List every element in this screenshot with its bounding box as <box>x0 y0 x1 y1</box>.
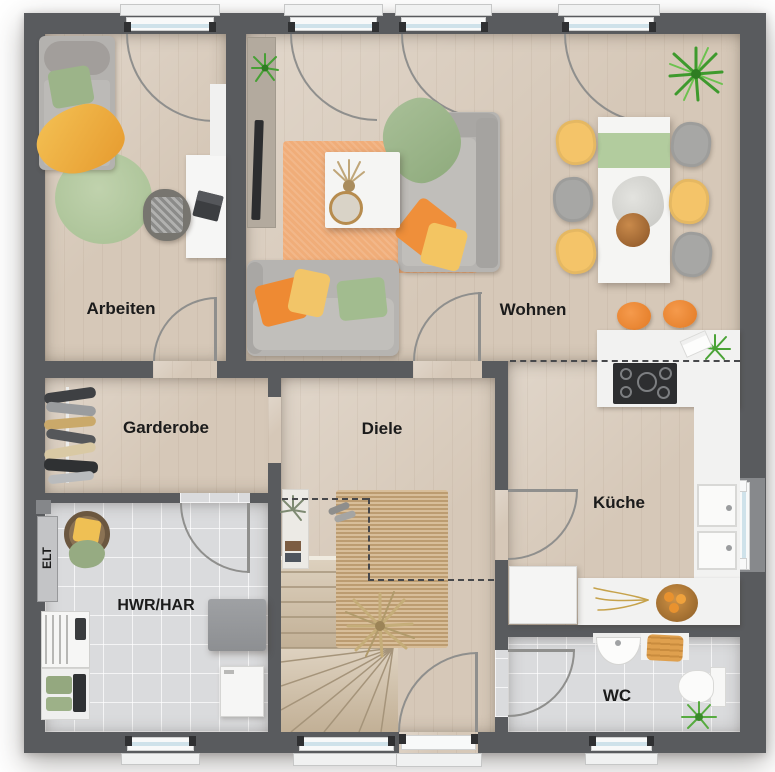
front-door-latch <box>399 734 406 744</box>
wall-diele-kueche-upper <box>495 378 508 490</box>
arbeiten-door-leaf <box>214 297 217 361</box>
front-door-sill <box>396 753 482 767</box>
kitchen-sink-2 <box>697 531 737 570</box>
wall-hwr-top-left <box>45 493 180 503</box>
arbeiten-door-opening <box>153 361 217 378</box>
cooktop-burner-4 <box>659 367 672 380</box>
wall-wc-left-upper <box>495 637 508 650</box>
hall-console-plant <box>277 492 309 524</box>
floorplan-canvas: Arbeiten Wohnen Garderobe Diele Küche HW… <box>0 0 775 772</box>
window-diele-glass <box>301 742 392 746</box>
folded-towels-green-2 <box>46 697 72 711</box>
wc-basin-faucet <box>615 640 621 646</box>
window-wohnen-3-cap-right <box>649 22 656 32</box>
cooktop-burner-3 <box>637 372 657 392</box>
dashed-line-stair-right <box>368 498 370 579</box>
hwr-door-opening <box>180 493 250 503</box>
room-label-garderobe: Garderobe <box>123 418 209 438</box>
window-hwr-glass <box>129 742 192 746</box>
coffee-table-tray <box>329 191 363 225</box>
fruit-orange-2 <box>676 594 686 604</box>
room-label-wohnen: Wohnen <box>500 300 567 320</box>
pampas-plant <box>342 586 418 662</box>
window-arbeiten-glass <box>128 24 212 28</box>
window-sill-diele <box>293 753 400 766</box>
room-label-arbeiten: Arbeiten <box>87 299 156 319</box>
window-sill-hwr <box>121 753 200 765</box>
window-sill-wc <box>585 753 658 765</box>
window-arbeiten-cap-left <box>124 22 131 32</box>
room-label-wc: WC <box>603 686 631 706</box>
wc-plant <box>676 697 722 733</box>
window-wc-glass <box>593 742 650 746</box>
laundry-dark-item <box>73 674 86 712</box>
window-wc-cap-left <box>589 736 596 746</box>
front-door-leaf-line <box>475 652 478 732</box>
hall-console-book-2 <box>285 553 301 562</box>
window-sill-wohnen-2 <box>395 4 492 16</box>
room-label-elt: ELT <box>40 547 54 569</box>
window-wohnen-2-cap-right <box>481 22 488 32</box>
window-sill-arbeiten <box>120 4 220 16</box>
bar-stool-2 <box>663 300 697 328</box>
wall-arbeiten-wohnen <box>226 34 246 361</box>
bar-stool-1 <box>617 302 651 330</box>
window-wohnen-3-cap-left <box>562 22 569 32</box>
desk-chair-cushion <box>151 197 183 233</box>
fruit-orange-3 <box>669 603 679 613</box>
room-label-kueche: Küche <box>593 493 645 513</box>
cooktop-burner-2 <box>620 386 632 398</box>
wall-diele-kueche-lower <box>495 560 508 625</box>
wall-wohnen-kueche-corner <box>482 361 508 378</box>
kueche-door-leaf <box>508 489 578 492</box>
kueche-door-opening <box>495 490 508 560</box>
wall-arbeiten-bottom-right <box>217 361 246 378</box>
window-wc-cap-right <box>647 736 654 746</box>
kitchen-faucet-2 <box>726 545 732 551</box>
hall-console-book-1 <box>285 541 301 551</box>
drying-rack-bars <box>45 615 73 664</box>
window-wohnen-2-cap-left <box>399 22 406 32</box>
heat-pump-unit <box>208 599 266 651</box>
palm-plant <box>664 42 728 106</box>
fridge <box>509 566 577 624</box>
cooktop-burner-1 <box>620 368 632 380</box>
wc-door-opening <box>495 650 508 717</box>
window-wohnen-3-glass <box>566 24 652 28</box>
wall-arbeiten-bottom-left <box>45 361 153 378</box>
window-sill-wohnen-1 <box>284 4 383 16</box>
dashed-line-stair-top <box>282 498 368 500</box>
wc-towel <box>646 634 683 662</box>
wohnen-door-opening <box>413 361 482 378</box>
wc-door-leaf <box>508 649 575 652</box>
folded-towels-green-1 <box>46 676 72 694</box>
wall-wc-left-lower <box>495 717 508 732</box>
window-hwr-cap-right <box>189 736 196 746</box>
drying-rack-item <box>75 618 86 640</box>
window-hwr-cap-left <box>125 736 132 746</box>
elt-meter-box <box>36 500 51 514</box>
window-kueche-glass <box>742 492 746 560</box>
window-wohnen-1-cap-left <box>288 22 295 32</box>
window-wohnen-2-glass <box>403 24 484 28</box>
front-door-hinge <box>471 734 478 744</box>
desk-shelf <box>210 84 226 156</box>
dashed-line-stair-bottom <box>368 579 494 581</box>
fruit-orange-1 <box>664 592 674 602</box>
front-door <box>401 735 476 750</box>
dining-centerpiece-vase <box>616 213 650 247</box>
dining-table-runner <box>598 133 670 168</box>
kitchen-faucet-1 <box>726 505 732 511</box>
hwr-door-leaf <box>247 503 250 573</box>
window-diele-cap-right <box>388 736 395 746</box>
wall-wohnen-bottom <box>246 361 413 378</box>
sofa-chaise-backrest <box>476 118 498 268</box>
wohnen-door-leaf <box>478 292 481 361</box>
tv-plant <box>248 50 282 86</box>
window-wohnen-1-cap-right <box>372 22 379 32</box>
cooktop-burner-5 <box>657 386 670 399</box>
room-label-diele: Diele <box>362 419 403 439</box>
dashed-line-wohnen-kueche <box>510 360 740 362</box>
kitchen-branch-decor <box>590 584 652 616</box>
window-diele-cap-left <box>297 736 304 746</box>
garderobe-diele-passage <box>268 397 281 463</box>
window-sill-wohnen-3 <box>558 4 660 16</box>
wall-garderobe-stub <box>268 378 281 397</box>
washer-unit-controls <box>224 670 234 674</box>
window-wohnen-1-glass <box>292 24 375 28</box>
room-label-hwr: HWR/HAR <box>117 597 194 615</box>
window-arbeiten-cap-right <box>209 22 216 32</box>
sofa-cushion-green-2 <box>336 277 388 322</box>
